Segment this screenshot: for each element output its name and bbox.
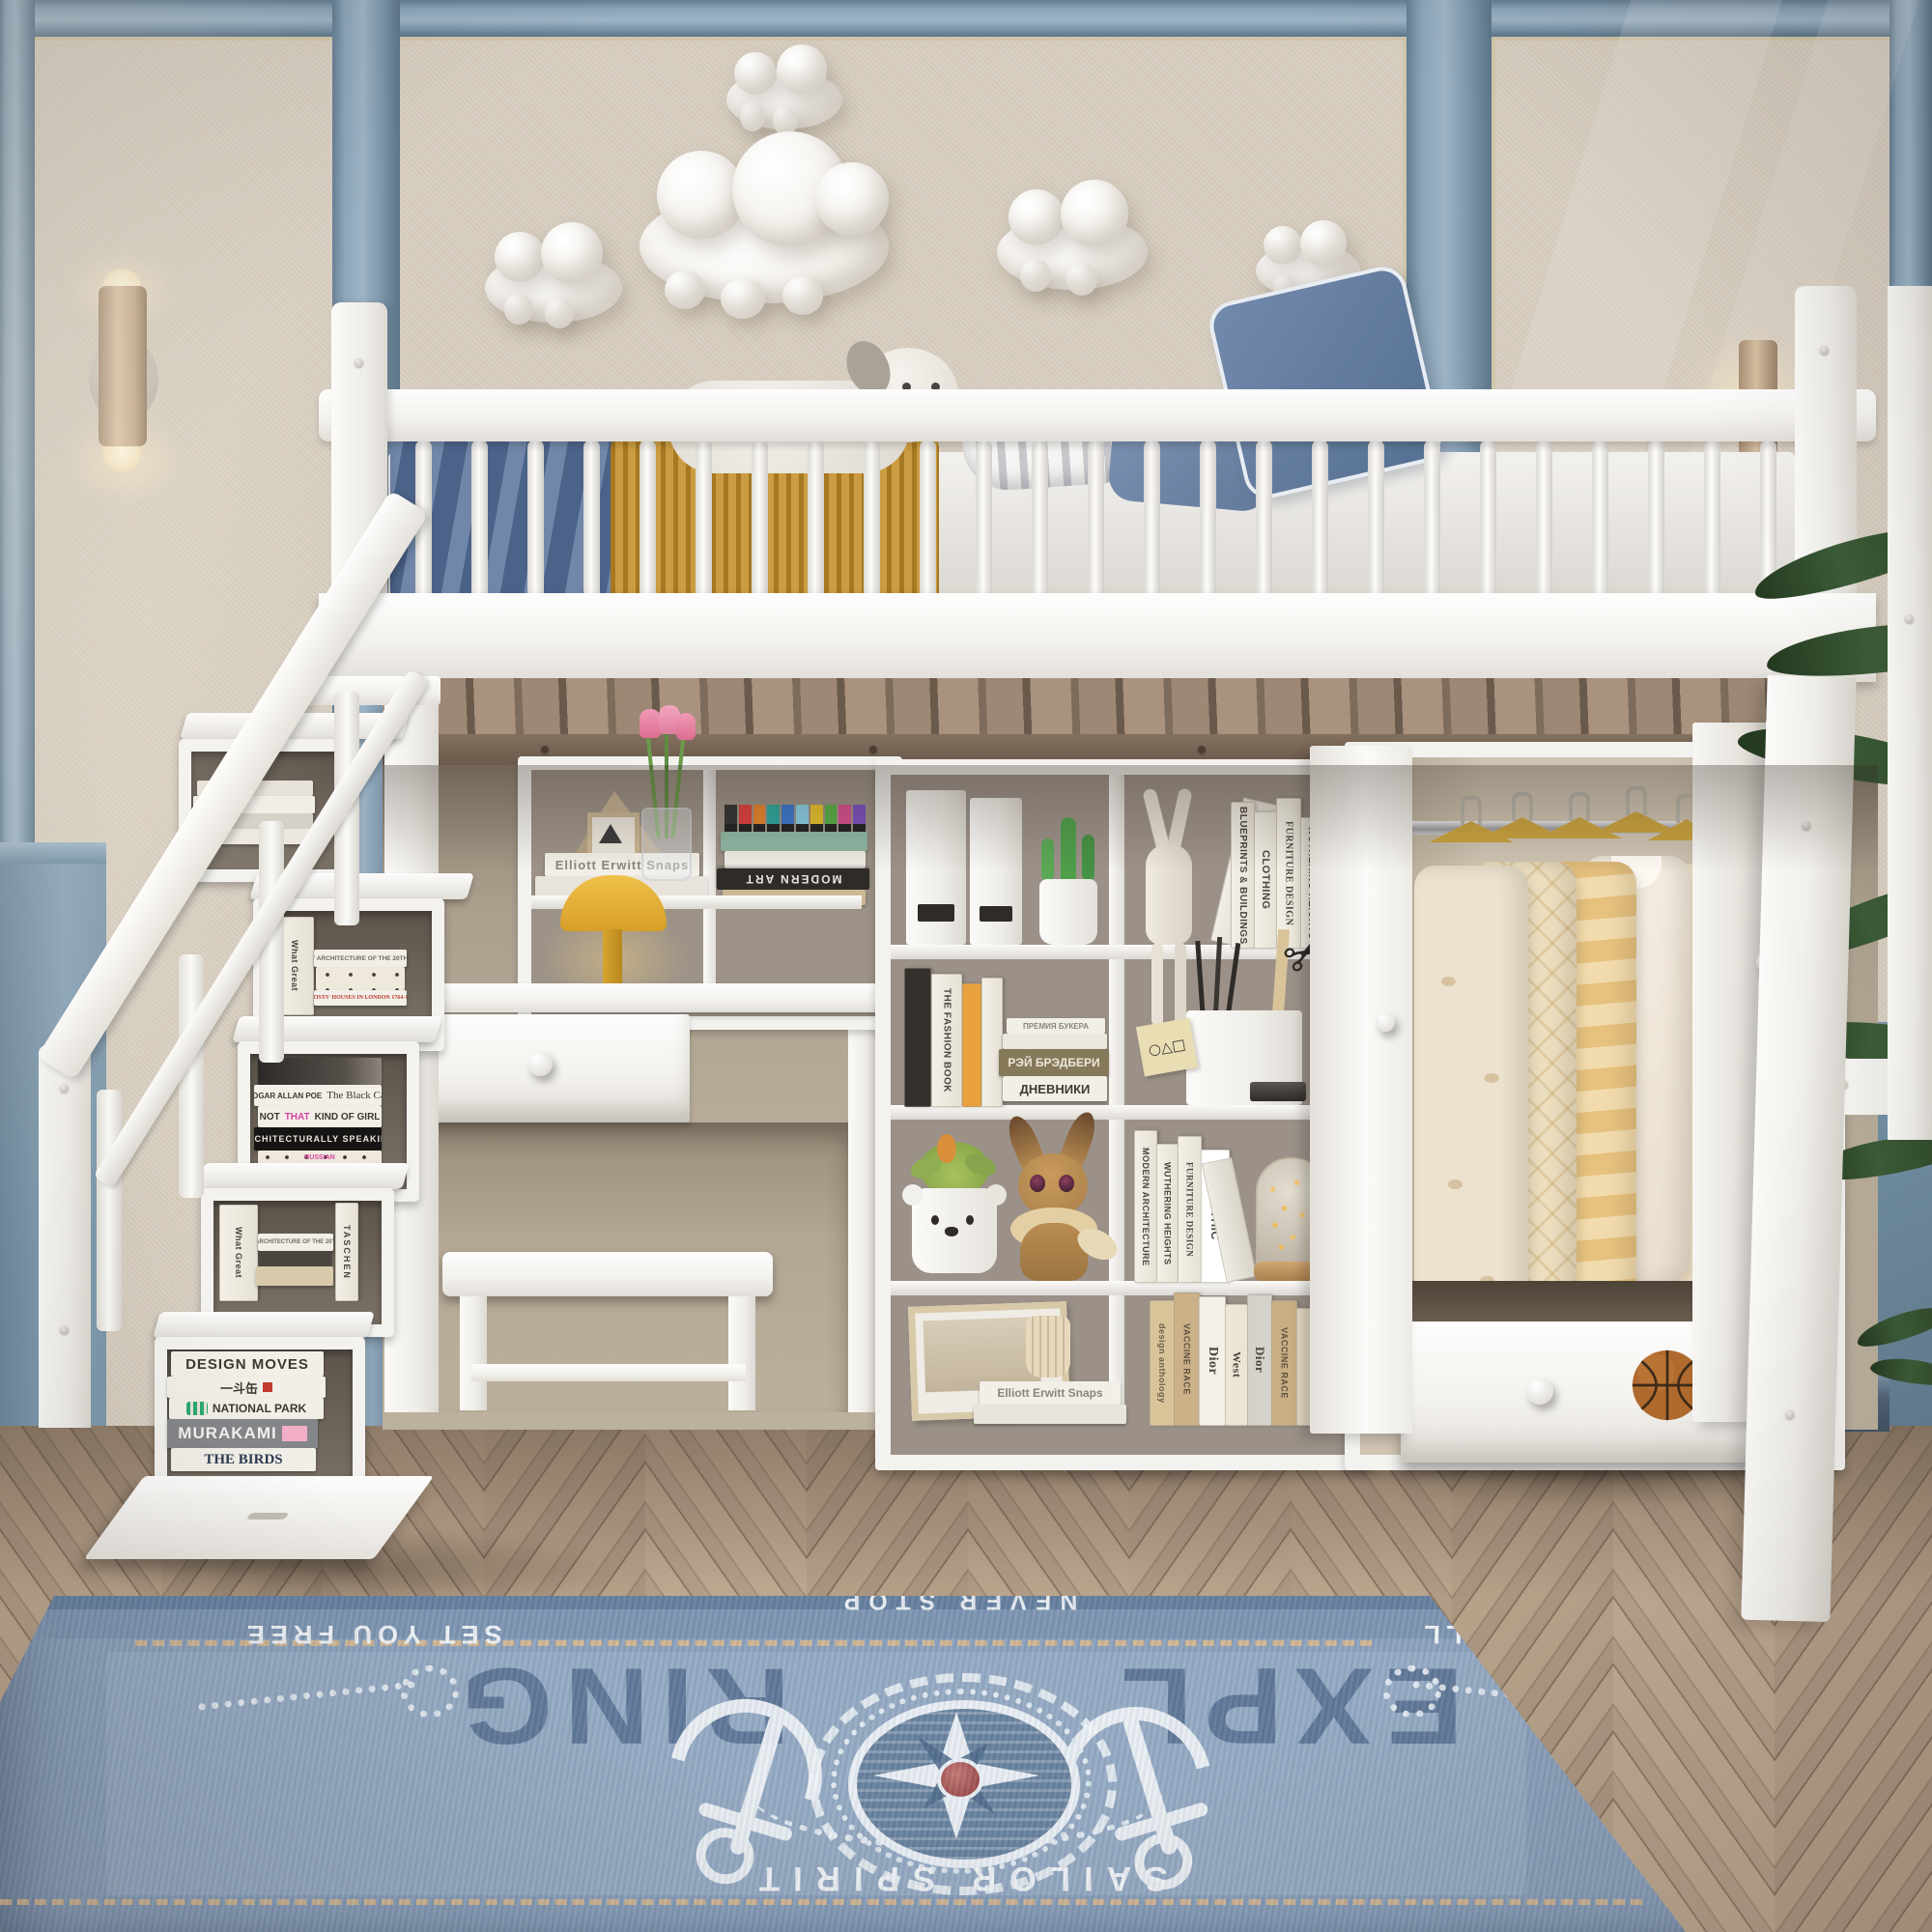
book-title: DESIGN MOVES <box>185 1356 309 1373</box>
bear-eye <box>966 1215 974 1225</box>
book-spine-dark <box>904 968 931 1107</box>
book-title: RUSSIAN <box>304 1154 335 1161</box>
eevee-figure <box>1005 1115 1111 1281</box>
book-spine: CLOTHING <box>1254 811 1277 949</box>
kids-room-photo: NEVER STOP THE SEA WILL SET YOU FREE EXP… <box>0 0 1932 1932</box>
book-title: VISIONARY ARCHITECTURE OF THE 20TH CENTU… <box>314 955 407 962</box>
book-artists-houses: ARTISTS' HOUSES IN LONDON 1764-1914 <box>314 990 407 1006</box>
rabbit-figurine <box>1132 788 1209 1030</box>
book-title: ДНЕВНИКИ <box>1020 1082 1091 1096</box>
book-title: West <box>1230 1351 1244 1378</box>
book-title: 一斗缶 <box>220 1378 258 1397</box>
bed-slats <box>383 678 1801 738</box>
book-title: VACCINE RACE <box>1280 1327 1290 1399</box>
sticky-symbols: ○△□ <box>1147 1036 1186 1059</box>
railing-spindle <box>527 440 544 606</box>
book-title: KIND OF GIRL <box>315 1112 381 1122</box>
cloud-puff <box>545 298 574 328</box>
book-visionary: VISIONARY ARCHITECTURE OF THE 20TH CENTU… <box>314 950 407 967</box>
bed-corner-post-right-edge <box>1888 286 1932 1140</box>
railing-spindle <box>1592 440 1608 606</box>
rabbit-body <box>1146 844 1192 945</box>
screw <box>60 1325 69 1334</box>
railing-spindle <box>1256 440 1272 606</box>
railing-spindle <box>864 440 880 606</box>
bed-top-rail <box>319 389 1876 441</box>
succulent-bear-pot <box>904 1142 1005 1281</box>
book-title: WUTHERING HEIGHTS <box>1163 1162 1173 1265</box>
cloud-puff <box>734 52 777 95</box>
book-title: THE BIRDS <box>204 1452 282 1468</box>
book-title: MODERN ARCHITECTURE <box>1141 1148 1151 1266</box>
cactus-stem <box>1082 835 1094 881</box>
cloud-puff <box>541 222 603 284</box>
railing-spindle <box>1480 440 1496 606</box>
book-japanese: 一斗缶 <box>167 1377 326 1398</box>
book-poe: EDGAR ALLAN POE The Black Cat <box>254 1085 382 1106</box>
book-spine: Dior <box>1199 1296 1226 1426</box>
cloud-decor-left <box>485 253 622 323</box>
screw <box>1905 614 1914 623</box>
eevee-eye <box>1059 1175 1074 1192</box>
book-title: What Great <box>234 1227 243 1278</box>
book-plain <box>1003 1034 1107 1049</box>
book-tan <box>256 1266 333 1286</box>
bear-ear <box>902 1184 923 1206</box>
book-spine: BLUEPRINTS & BUILDINGS <box>1231 802 1255 949</box>
marker <box>781 805 794 832</box>
screw <box>1820 346 1829 355</box>
book-taschen: TASCHEN <box>335 1203 358 1301</box>
cloud-puff <box>495 232 545 282</box>
book-fashion: THE FASHION BOOK <box>931 974 962 1107</box>
pink-label <box>282 1426 307 1441</box>
rabbit-leg <box>1151 943 1163 1026</box>
book-what-great: What Great <box>219 1205 258 1301</box>
book-elliott-erwitt-2: Elliott Erwitt Snaps <box>980 1381 1121 1405</box>
book-title: MODERN ART <box>745 872 842 886</box>
eevee-eye <box>1030 1175 1045 1192</box>
cloud-puff <box>1300 220 1347 267</box>
railing-spindle <box>1312 440 1328 606</box>
railing-spindle <box>1200 440 1216 606</box>
railing-spindle <box>1144 440 1160 606</box>
cactus-stem <box>1041 838 1054 881</box>
hanger-icon <box>1429 821 1514 842</box>
cloud-puff <box>740 102 765 131</box>
book-dark <box>260 1251 331 1266</box>
book-title: What Great <box>289 940 298 991</box>
book-spine: VACCINE RACE <box>1271 1300 1297 1426</box>
book-title: ПРЕМИЯ БУКЕРА <box>1023 1022 1089 1031</box>
book-title: NOT <box>260 1112 280 1122</box>
book-diaries: ДНЕВНИКИ <box>1003 1076 1107 1101</box>
screw <box>1802 821 1810 830</box>
book-not-that-kind: NOT THAT KIND OF GIRL <box>258 1106 382 1127</box>
railing-spindle <box>808 440 824 606</box>
screw <box>1198 746 1206 753</box>
cloud-puff <box>1061 180 1128 247</box>
railing-spindle <box>696 440 712 606</box>
screw <box>60 1084 69 1093</box>
book-title: THE FASHION BOOK <box>942 988 952 1093</box>
book-title: TASCHEN <box>342 1225 352 1280</box>
cloud-puff <box>721 278 765 319</box>
railing-spindle <box>1032 440 1048 606</box>
book-the-birds: THE BIRDS <box>171 1448 316 1471</box>
wall-sconce-left <box>68 261 193 483</box>
desk-top <box>383 983 877 1012</box>
book-title: Dior <box>1252 1347 1267 1373</box>
lamp-shade <box>560 875 667 931</box>
cloud-puff <box>777 44 827 95</box>
tulip-flower <box>676 713 696 740</box>
bear-ear <box>985 1184 1007 1206</box>
book-title: VACCINE RACE <box>1182 1323 1192 1395</box>
screw <box>355 358 363 367</box>
screw <box>541 746 549 753</box>
sticky-notes: ○△□ <box>1136 1018 1198 1077</box>
marker <box>810 805 823 832</box>
glass-vase <box>641 808 692 881</box>
railing-spindle <box>471 440 488 606</box>
book-spine: design anthology <box>1150 1300 1175 1426</box>
stair-flap-door <box>84 1476 434 1559</box>
book-green <box>721 832 867 851</box>
book-title: CLOTHING <box>1260 850 1271 909</box>
ribbed-vase <box>1026 1316 1070 1378</box>
bear-nose <box>945 1227 958 1236</box>
book-author: EDGAR ALLAN POE <box>254 1092 322 1100</box>
tulip-vase <box>622 705 699 879</box>
book-premiya: ПРЕМИЯ БУКЕРА <box>1007 1018 1105 1034</box>
desk-drawer-knob <box>527 1051 553 1076</box>
book-plain <box>724 851 866 868</box>
book-visionary: VISIONARY ARCHITECTURE OF THE 20TH CENTU… <box>258 1234 333 1251</box>
book-modern-art: MODERN ART <box>717 868 869 890</box>
book-title: Dior <box>1205 1347 1220 1375</box>
rabbit-leg <box>1175 943 1186 1026</box>
book-national-park: NATIONAL PARK <box>169 1398 324 1419</box>
cactus-plant <box>1034 817 1103 945</box>
desk-bench-seat <box>442 1252 773 1296</box>
marker-set <box>724 805 866 832</box>
cloud-puff <box>1020 259 1051 292</box>
book-title: VISIONARY ARCHITECTURE OF THE 20TH CENTU… <box>258 1239 333 1245</box>
book-spine-orange <box>962 983 981 1107</box>
cloud-puff <box>665 270 705 309</box>
rabbit-ear <box>1166 787 1192 852</box>
railing-spindle <box>1536 440 1552 606</box>
book-spine: WUTHERING HEIGHTS <box>1156 1144 1179 1283</box>
succulent-leaf <box>937 1134 956 1163</box>
wardrobe-door-left <box>1310 746 1412 1434</box>
screw <box>1785 1410 1794 1419</box>
book-title: ARTISTS' HOUSES IN LONDON 1764-1914 <box>314 995 407 1001</box>
cloud-puff <box>1009 189 1065 245</box>
stair-baluster <box>97 1090 122 1331</box>
stair-tread <box>197 1163 410 1189</box>
railing-spindle <box>1704 440 1720 606</box>
wainscot-left-cap <box>0 842 106 864</box>
book-plain <box>974 1405 1126 1424</box>
flap-handle-slot <box>246 1513 290 1520</box>
railing-spindle <box>752 440 768 606</box>
desk-bench-leg <box>728 1296 755 1410</box>
book-spine: MODERN ARCHITECTURE <box>1134 1130 1157 1283</box>
cloud-puff <box>782 276 823 315</box>
eevee-body <box>1020 1223 1088 1281</box>
marker <box>853 805 866 832</box>
book-title: FURNITURE DESIGN <box>1284 821 1294 925</box>
hanging-shirt-dino <box>1414 866 1528 1349</box>
stapler <box>1250 1082 1306 1101</box>
bookshelf-shelf <box>891 1281 1327 1295</box>
tulip-flower <box>639 709 661 738</box>
book-spine <box>981 978 1003 1107</box>
cloud-puff <box>815 162 889 236</box>
book-title: Elliott Erwitt Snaps <box>997 1386 1102 1400</box>
railing-spindle <box>920 440 936 606</box>
rabbit-ear <box>1142 787 1171 852</box>
marker <box>753 805 766 832</box>
cloud-puff <box>1066 263 1097 296</box>
book-design-moves: DESIGN MOVES <box>171 1351 324 1377</box>
marker <box>796 805 809 832</box>
cactus-pot <box>1039 879 1097 945</box>
bookshelf-divider <box>1109 775 1124 1424</box>
cloud-puff <box>1264 226 1302 265</box>
desk-bench-leg <box>460 1296 487 1410</box>
book-title: The Black Cat <box>327 1090 382 1101</box>
book-bradbury: РЭЙ БРЭДБЕРИ <box>999 1049 1109 1076</box>
cloud-decor-right <box>997 214 1148 290</box>
book-spine: West <box>1225 1304 1248 1426</box>
book-title-accent: THAT <box>285 1112 310 1122</box>
book-dotted <box>316 967 405 990</box>
file-box <box>906 790 966 945</box>
cloud-puff <box>504 294 533 325</box>
cloud-decor-large <box>639 189 889 303</box>
book-title: BLUEPRINTS & BUILDINGS <box>1237 807 1248 945</box>
railing-spindle <box>583 440 600 606</box>
marker <box>724 805 737 832</box>
file-box-slot <box>980 906 1012 922</box>
marker <box>739 805 752 832</box>
marker <box>825 805 838 832</box>
screw <box>869 746 877 753</box>
railing-spindle <box>639 440 656 606</box>
railing-spindle <box>1424 440 1440 606</box>
stair-tread <box>153 1312 375 1338</box>
cloud-decor-small-top <box>726 70 842 129</box>
book-title: ARCHITECTURALLY SPEAKING <box>254 1134 382 1144</box>
book-architecturally: ARCHITECTURALLY SPEAKING <box>254 1127 382 1151</box>
bookshelf: BLUEPRINTS & BUILDINGS CLOTHING FURNITUR… <box>875 759 1374 1470</box>
bed-fascia <box>319 593 1876 682</box>
book-spine: FURNITURE DESIGN <box>1178 1136 1202 1283</box>
file-box-slot <box>918 904 954 922</box>
file-box <box>970 798 1022 945</box>
book-russian-pattern: RUSSIAN <box>258 1151 382 1164</box>
dome-lights <box>1264 1171 1316 1256</box>
book-spine: Dior <box>1247 1294 1272 1426</box>
sconce-cylinder <box>99 286 147 446</box>
cactus-stem <box>1061 817 1076 885</box>
book-title: MURAKAMI <box>178 1424 276 1443</box>
wardrobe-drawer-knob <box>1526 1378 1553 1405</box>
marker <box>767 805 780 832</box>
desk-bench-stretcher <box>471 1364 746 1381</box>
railing-spindle <box>1648 440 1664 606</box>
red-seal <box>263 1382 272 1392</box>
book-murakami: MURAKAMI <box>167 1419 318 1448</box>
marker <box>838 805 851 832</box>
lamp-stem <box>603 929 622 989</box>
park-sticker <box>186 1402 208 1415</box>
railing-spindle <box>1088 440 1104 606</box>
railing-spindle <box>1368 440 1384 606</box>
book-title: РЭЙ БРЭДБЕРИ <box>1008 1056 1099 1069</box>
railing-spindle <box>976 440 992 606</box>
book-title: design anthology <box>1157 1323 1167 1404</box>
book-spine: VACCINE RACE <box>1174 1293 1200 1426</box>
wardrobe-door-knob <box>1376 1012 1395 1032</box>
book-title: NATIONAL PARK <box>213 1402 306 1415</box>
book-title: FURNITURE DESIGN <box>1185 1162 1195 1257</box>
stair-newel-post <box>39 1045 91 1428</box>
bear-eye <box>931 1215 939 1225</box>
